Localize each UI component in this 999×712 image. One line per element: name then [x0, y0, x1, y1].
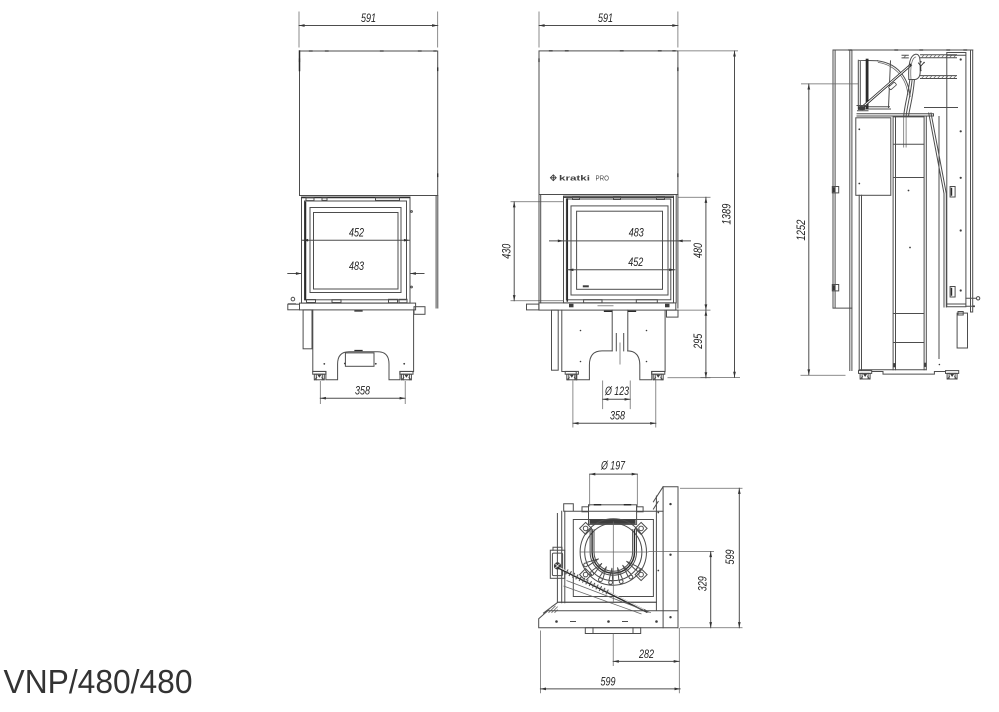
svg-text:483: 483	[349, 259, 364, 273]
svg-text:430: 430	[499, 243, 513, 258]
svg-text:282: 282	[638, 647, 654, 661]
svg-text:VNP/480/480: VNP/480/480	[4, 664, 193, 701]
svg-text:PRO: PRO	[596, 176, 610, 183]
svg-text:591: 591	[598, 11, 613, 25]
svg-text:483: 483	[629, 226, 644, 240]
svg-text:480: 480	[691, 243, 705, 258]
svg-text:599: 599	[723, 549, 737, 564]
svg-text:kratki: kratki	[559, 174, 590, 183]
svg-text:358: 358	[610, 409, 625, 423]
svg-text:1389: 1389	[719, 203, 733, 224]
svg-text:452: 452	[349, 226, 364, 240]
svg-text:Ø 197: Ø 197	[600, 459, 626, 473]
svg-text:1252: 1252	[794, 219, 808, 240]
svg-text:452: 452	[628, 255, 643, 269]
svg-text:295: 295	[691, 334, 705, 350]
svg-text:Ø 123: Ø 123	[604, 384, 629, 398]
svg-text:329: 329	[695, 576, 709, 591]
svg-text:358: 358	[355, 384, 370, 398]
svg-text:599: 599	[601, 674, 616, 688]
svg-text:591: 591	[361, 11, 376, 25]
